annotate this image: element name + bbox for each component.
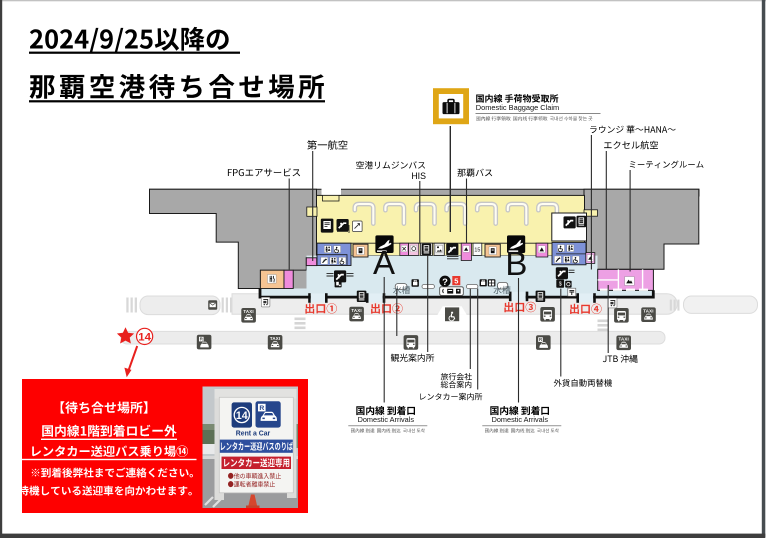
- svg-text:14: 14: [138, 332, 151, 344]
- svg-text:$: $: [559, 282, 562, 288]
- svg-text:A: A: [373, 244, 395, 281]
- svg-text:Domestic Baggage Claim: Domestic Baggage Claim: [476, 103, 559, 112]
- svg-text:HIS: HIS: [411, 171, 426, 181]
- svg-text:Domestic Arrivals: Domestic Arrivals: [358, 415, 415, 424]
- svg-text:15: 15: [474, 247, 480, 253]
- svg-text:Rent a Car: Rent a Car: [236, 431, 271, 438]
- svg-text:5: 5: [454, 277, 458, 286]
- svg-text:14: 14: [236, 410, 248, 422]
- svg-text:B: B: [505, 245, 527, 282]
- svg-text:R: R: [259, 405, 264, 412]
- svg-text:Domestic Arrivals: Domestic Arrivals: [492, 415, 549, 424]
- svg-text:?: ?: [442, 276, 448, 287]
